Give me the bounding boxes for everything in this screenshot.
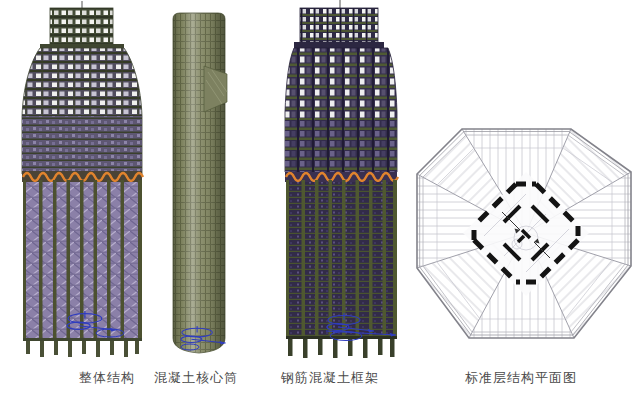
base-slab-line: [286, 336, 397, 339]
tower-top-block: [50, 8, 113, 44]
typical-floor-plan-caption: 标准层结构平面图: [465, 369, 577, 387]
panel-overall-structure: [18, 0, 152, 366]
figure-canvas: 整体结构 混凝土核心筒 钢筋混凝土框架 标准层结构平面图: [0, 0, 640, 404]
tower-mid-band: [22, 116, 142, 172]
panel-rc-frame: [282, 0, 402, 366]
panel-concrete-core-tube: [166, 0, 236, 370]
tower-mid-band: [285, 118, 397, 172]
overall-structure-caption: 整体结构: [79, 369, 135, 387]
tower-top-block: [300, 8, 378, 42]
base-slab-line: [23, 338, 142, 341]
overall-structure-model: [18, 0, 152, 366]
core-tube-shading: [173, 13, 225, 353]
panel-typical-floor-plan: [414, 126, 640, 344]
core-tube-model: [166, 0, 236, 370]
rc-frame-caption: 钢筋混凝土框架: [281, 369, 379, 387]
base-columns: [26, 341, 139, 357]
concrete-core-tube-caption: 混凝土核心筒: [154, 369, 238, 387]
tower-ledge: [294, 42, 384, 48]
rc-frame-model: [282, 0, 402, 366]
base-columns: [288, 339, 395, 358]
floor-plan-drawing: [414, 126, 640, 344]
